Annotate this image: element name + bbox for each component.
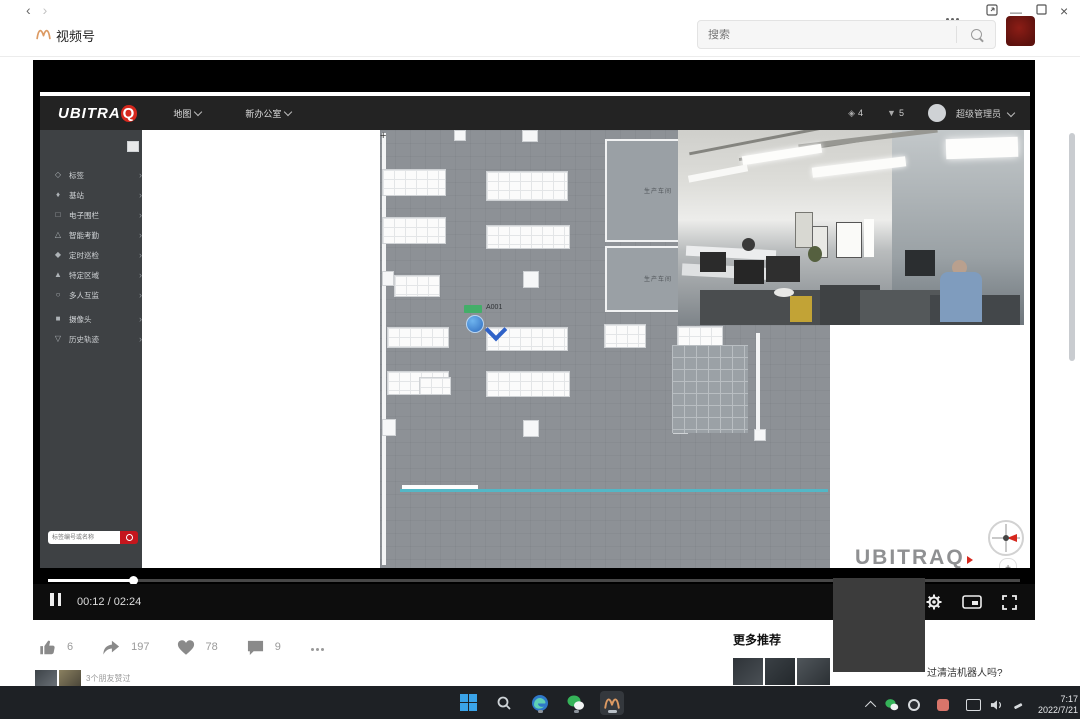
like-count: 6 xyxy=(67,641,73,653)
tray-red-app-icon[interactable] xyxy=(937,699,949,711)
cam-light xyxy=(688,164,748,182)
recommend-thumbnail[interactable] xyxy=(797,658,830,685)
channels-logo-icon xyxy=(35,26,52,41)
search-icon xyxy=(496,695,512,711)
friend-thumbnail[interactable] xyxy=(35,670,57,686)
taskbar-clock[interactable]: 7:17 2022/7/21 xyxy=(1038,694,1078,716)
zoom-in-button[interactable]: + xyxy=(1000,559,1016,568)
camera-icon: ■ xyxy=(54,315,62,323)
pillar xyxy=(755,430,765,440)
cam-plant xyxy=(808,246,822,262)
desk xyxy=(383,170,445,195)
wechat-tray-icon[interactable] xyxy=(885,698,899,712)
sidebar-item-mutual[interactable]: ○多人互监› xyxy=(54,286,142,304)
chevron-right-icon: › xyxy=(139,231,142,240)
recommend-thumbnail[interactable] xyxy=(765,658,795,685)
theater-mode-icon[interactable] xyxy=(962,595,982,609)
edge-icon xyxy=(531,694,549,712)
tag-badge[interactable] xyxy=(464,305,482,313)
header-separator xyxy=(0,56,1080,57)
search-icon xyxy=(971,29,982,40)
pillar xyxy=(383,420,395,435)
cam-window xyxy=(836,222,862,258)
pillar xyxy=(524,272,538,287)
pen-icon[interactable] xyxy=(1012,699,1025,711)
user-avatar[interactable] xyxy=(928,104,946,122)
area-icon: ▲ xyxy=(54,271,62,279)
desk xyxy=(388,328,448,347)
cam-person-body xyxy=(940,272,982,322)
taskbar-wechat-button[interactable] xyxy=(564,691,588,715)
mutual-monitor-icon: ○ xyxy=(54,291,62,299)
mini-window-icon[interactable] xyxy=(986,4,998,16)
taskbar-channels-button[interactable] xyxy=(600,691,624,715)
wechat-icon xyxy=(567,694,585,712)
ubitraq-logo: UBITRAQ xyxy=(58,105,137,122)
close-icon[interactable]: × xyxy=(1060,5,1068,17)
recommend-item-title[interactable]: 过清洁机器人吗? xyxy=(927,664,1003,679)
sidebar: ◇标签› ♦基站› □电子围栏› △智能考勤› ◆定时巡检› ▲特定区域› ○多… xyxy=(40,130,142,568)
sidebar-item-area[interactable]: ▲特定区域› xyxy=(54,266,142,284)
taskbar-edge-button[interactable] xyxy=(528,691,552,715)
nav-arrows: ‹ › xyxy=(26,3,47,17)
cam-light xyxy=(742,144,822,165)
comment-icon[interactable] xyxy=(246,639,265,656)
chevron-down-icon xyxy=(194,107,202,115)
clock-time: 7:17 xyxy=(1038,694,1078,705)
settings-gear-icon[interactable] xyxy=(926,594,942,610)
active-indicator xyxy=(608,710,617,713)
recommend-thumbnail[interactable] xyxy=(733,658,763,685)
search-bar[interactable] xyxy=(697,20,996,49)
map-wall xyxy=(756,333,760,431)
cam-monitor xyxy=(905,250,935,276)
system-tray: 7:17 2022/7/21 xyxy=(868,694,1078,716)
pillar xyxy=(383,272,393,285)
touch-keyboard-icon[interactable] xyxy=(966,699,981,711)
cam-picture xyxy=(795,212,813,248)
sidebar-item-camera[interactable]: ■摄像头› xyxy=(54,310,142,328)
chevron-right-icon: › xyxy=(139,251,142,260)
desk xyxy=(487,226,569,248)
camera-feed xyxy=(678,130,1024,325)
like-icon[interactable] xyxy=(38,638,57,656)
chevron-down-icon xyxy=(1007,109,1015,117)
compass[interactable] xyxy=(988,520,1024,556)
desk xyxy=(383,218,445,243)
more-actions-icon[interactable] xyxy=(309,638,324,656)
corridor-line xyxy=(400,489,828,492)
chevron-right-icon: › xyxy=(139,191,142,200)
sidebar-item-patrol[interactable]: ◆定时巡检› xyxy=(54,246,142,264)
user-role-menu[interactable]: 超级管理员 xyxy=(956,107,1014,120)
pillar xyxy=(455,131,465,140)
back-icon[interactable]: ‹ xyxy=(26,3,31,17)
chevron-right-icon: › xyxy=(139,291,142,300)
cam-yellow-box xyxy=(790,296,812,322)
tag-search-input[interactable] xyxy=(48,531,120,544)
forward-icon[interactable]: › xyxy=(43,3,48,17)
history-icon: ▽ xyxy=(54,335,62,343)
cam-person xyxy=(742,238,755,251)
patrol-icon: ◆ xyxy=(54,251,62,259)
tray-record-icon[interactable] xyxy=(908,699,920,711)
start-button[interactable] xyxy=(456,691,480,715)
desk xyxy=(395,276,439,296)
room-production-2: 生产车间 xyxy=(605,246,680,312)
chevron-down-icon xyxy=(284,107,292,115)
search-icon xyxy=(126,534,133,541)
desk xyxy=(420,378,450,394)
fence-icon: □ xyxy=(54,211,62,219)
scrollbar-thumb[interactable] xyxy=(1069,133,1075,361)
cam-monitor xyxy=(766,256,800,282)
signal-icon: ▼ xyxy=(887,108,896,118)
video-player[interactable]: UBITRAQ 地图 新办公室 ◈4 ▼5 超级管理员 ◇标签› ♦基站› □电… xyxy=(33,60,1035,620)
avatar[interactable] xyxy=(1006,16,1035,46)
watermark-logo: UBITRAQ xyxy=(855,546,973,568)
ubitraq-header: UBITRAQ 地图 新办公室 ◈4 ▼5 超级管理员 xyxy=(40,96,1030,130)
recommend-title: 更多推荐 xyxy=(733,631,781,648)
volume-icon[interactable] xyxy=(990,699,1003,711)
chevron-right-icon: › xyxy=(139,211,142,220)
clock-date: 2022/7/21 xyxy=(1038,705,1078,716)
progress-fill xyxy=(48,579,133,582)
cam-window xyxy=(864,219,874,257)
search-button[interactable] xyxy=(957,29,995,40)
chevron-right-icon: › xyxy=(139,315,142,324)
fullscreen-icon[interactable] xyxy=(1002,595,1017,610)
video-frame: UBITRAQ 地图 新办公室 ◈4 ▼5 超级管理员 ◇标签› ♦基站› □电… xyxy=(40,92,1030,568)
channels-logo-icon xyxy=(603,695,621,710)
social-bar: 6 197 78 9 xyxy=(38,638,324,656)
station-count-stat[interactable]: ▼5 xyxy=(887,108,904,118)
sidebar-item-stations[interactable]: ♦基站› xyxy=(54,186,142,204)
friends-liked-text: 3个朋友赞过 xyxy=(86,673,130,684)
chevron-right-icon: › xyxy=(139,335,142,344)
tag-icon: ◇ xyxy=(54,171,62,179)
chevron-right-icon: › xyxy=(139,271,142,280)
map-corner-mark: + xyxy=(380,130,386,142)
compass-center xyxy=(1003,535,1009,541)
cam-monitor xyxy=(700,252,726,272)
chevron-right-icon: › xyxy=(139,171,142,180)
search-input[interactable] xyxy=(698,29,956,41)
comment-count: 9 xyxy=(275,641,281,653)
playback-time: 00:12 / 02:24 xyxy=(77,596,141,608)
tag-count-stat[interactable]: ◈4 xyxy=(848,108,863,119)
tag-name-label: A001 xyxy=(486,304,502,311)
cam-clutter xyxy=(860,290,940,325)
attendance-icon: △ xyxy=(54,231,62,239)
page-title: 视频号 xyxy=(56,26,95,45)
sidebar-item-attendance[interactable]: △智能考勤› xyxy=(54,226,142,244)
heart-count: 78 xyxy=(205,641,217,653)
tag-search-button[interactable] xyxy=(120,531,138,544)
tag-person-marker[interactable] xyxy=(466,315,484,333)
running-indicator xyxy=(574,710,579,713)
map-wall xyxy=(382,133,386,565)
pause-button[interactable] xyxy=(50,593,65,611)
heart-icon[interactable] xyxy=(177,639,195,656)
desk xyxy=(487,372,569,396)
sidebar-item-history[interactable]: ▽历史轨迹› xyxy=(54,330,142,348)
watermark-accent xyxy=(967,556,973,564)
sidebar-item-tags[interactable]: ◇标签› xyxy=(54,166,142,184)
menu-site[interactable]: 新办公室 xyxy=(245,107,291,120)
menu-map[interactable]: 地图 xyxy=(173,107,201,120)
desk xyxy=(605,325,645,347)
desktop-screen: ‹ › — × 视频号 UBITRAQ 地图 新办公室 ◈4 ▼5 超级管 xyxy=(0,0,1080,719)
friend-thumbnail[interactable] xyxy=(59,670,81,686)
pillar xyxy=(523,131,537,141)
room-production-1: 生产车间 xyxy=(605,139,680,242)
running-indicator xyxy=(538,710,543,713)
cam-light xyxy=(946,137,1019,160)
maximize-icon[interactable] xyxy=(1036,4,1047,15)
zoom-control[interactable]: + − xyxy=(999,558,1017,568)
taskbar-search-button[interactable] xyxy=(492,691,516,715)
windows-logo-icon xyxy=(460,694,477,711)
share-icon[interactable] xyxy=(101,638,121,656)
tag-search-bar[interactable] xyxy=(48,531,138,544)
station-icon: ♦ xyxy=(54,191,62,199)
pillar xyxy=(524,421,538,436)
desk xyxy=(678,327,722,347)
cam-monitor xyxy=(734,260,764,284)
floating-dark-panel xyxy=(833,578,925,672)
share-count: 197 xyxy=(131,641,149,653)
desk xyxy=(487,172,567,200)
sidebar-collapse-button[interactable] xyxy=(128,142,138,151)
sidebar-item-fence[interactable]: □电子围栏› xyxy=(54,206,142,224)
tiled-area xyxy=(672,345,748,433)
tag-icon: ◈ xyxy=(848,108,855,119)
